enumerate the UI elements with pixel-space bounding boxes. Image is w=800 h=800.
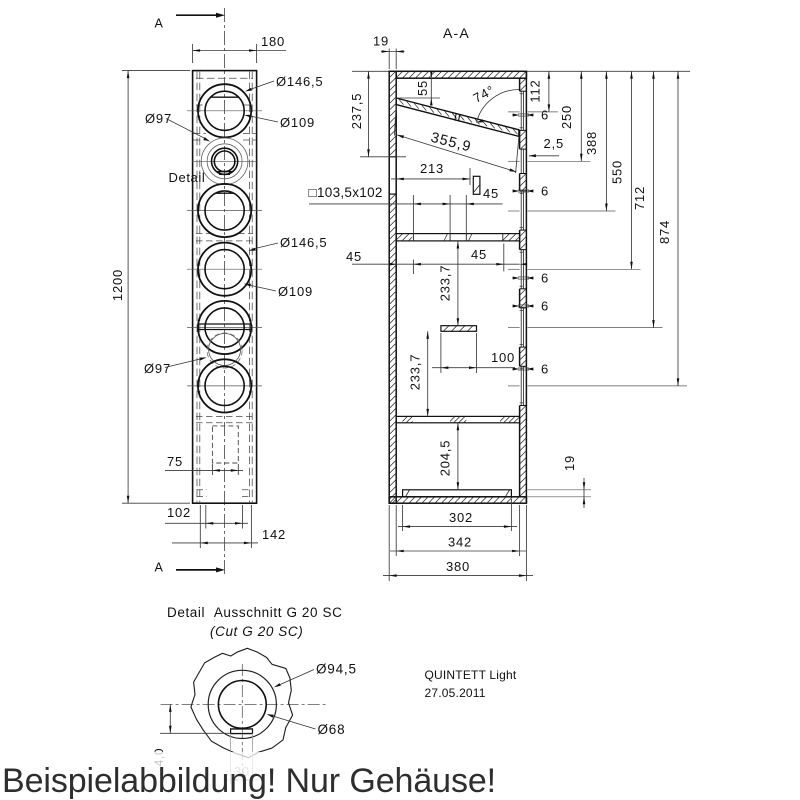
svg-text:Ø109: Ø109 (278, 284, 313, 299)
svg-text:Ø146,5: Ø146,5 (280, 235, 327, 250)
svg-text:250: 250 (559, 105, 574, 129)
svg-text:Beispielabbildung! Nur Gehäuse: Beispielabbildung! Nur Gehäuse! (2, 762, 496, 800)
svg-text:Detail Ausschnitt G 20 SC: Detail Ausschnitt G 20 SC (167, 605, 342, 620)
svg-text:Ø109: Ø109 (280, 115, 315, 130)
svg-text:Detail: Detail (169, 170, 206, 185)
svg-text:Ø94,5: Ø94,5 (316, 662, 357, 677)
svg-text:874: 874 (657, 220, 672, 244)
svg-text:6: 6 (541, 299, 549, 314)
svg-text:712: 712 (632, 186, 647, 210)
svg-text:380: 380 (446, 559, 470, 574)
svg-text:233,7: 233,7 (438, 265, 453, 302)
svg-text:2,5: 2,5 (544, 136, 564, 151)
svg-text:550: 550 (610, 160, 625, 184)
svg-text:6: 6 (541, 362, 549, 377)
svg-text:Ø68: Ø68 (318, 722, 346, 737)
svg-text:A: A (155, 561, 164, 575)
svg-text:□103,5x102: □103,5x102 (309, 185, 383, 200)
svg-text:(Cut G 20 SC): (Cut G 20 SC) (210, 624, 303, 639)
svg-text:388: 388 (584, 131, 599, 155)
svg-text:180: 180 (261, 34, 285, 49)
svg-text:19: 19 (562, 455, 577, 471)
svg-text:102: 102 (167, 505, 191, 520)
svg-text:204,5: 204,5 (438, 440, 453, 477)
svg-text:100: 100 (491, 350, 515, 365)
svg-text:QUINTETT Light: QUINTETT Light (425, 668, 517, 682)
svg-text:45: 45 (483, 186, 499, 201)
svg-text:A: A (155, 17, 164, 31)
svg-text:Ø97: Ø97 (144, 361, 171, 376)
svg-text:213: 213 (420, 161, 444, 176)
svg-text:27.05.2011: 27.05.2011 (425, 686, 486, 700)
svg-text:45: 45 (346, 249, 362, 264)
svg-text:55: 55 (415, 80, 430, 96)
svg-text:112: 112 (528, 79, 543, 102)
svg-text:75: 75 (167, 454, 183, 469)
svg-text:233,7: 233,7 (408, 354, 423, 391)
svg-text:6: 6 (541, 271, 549, 286)
svg-text:6: 6 (541, 108, 549, 123)
svg-text:1200: 1200 (110, 269, 125, 301)
svg-text:Ø97: Ø97 (145, 111, 172, 126)
svg-text:237,5: 237,5 (349, 93, 364, 130)
svg-text:19: 19 (373, 34, 389, 49)
svg-text:45: 45 (471, 247, 487, 262)
svg-text:302: 302 (449, 510, 473, 525)
svg-text:342: 342 (448, 535, 472, 550)
svg-text:6: 6 (541, 184, 549, 199)
svg-text:142: 142 (262, 527, 286, 542)
svg-text:A-A: A-A (443, 25, 470, 41)
svg-text:Ø146,5: Ø146,5 (276, 74, 323, 89)
